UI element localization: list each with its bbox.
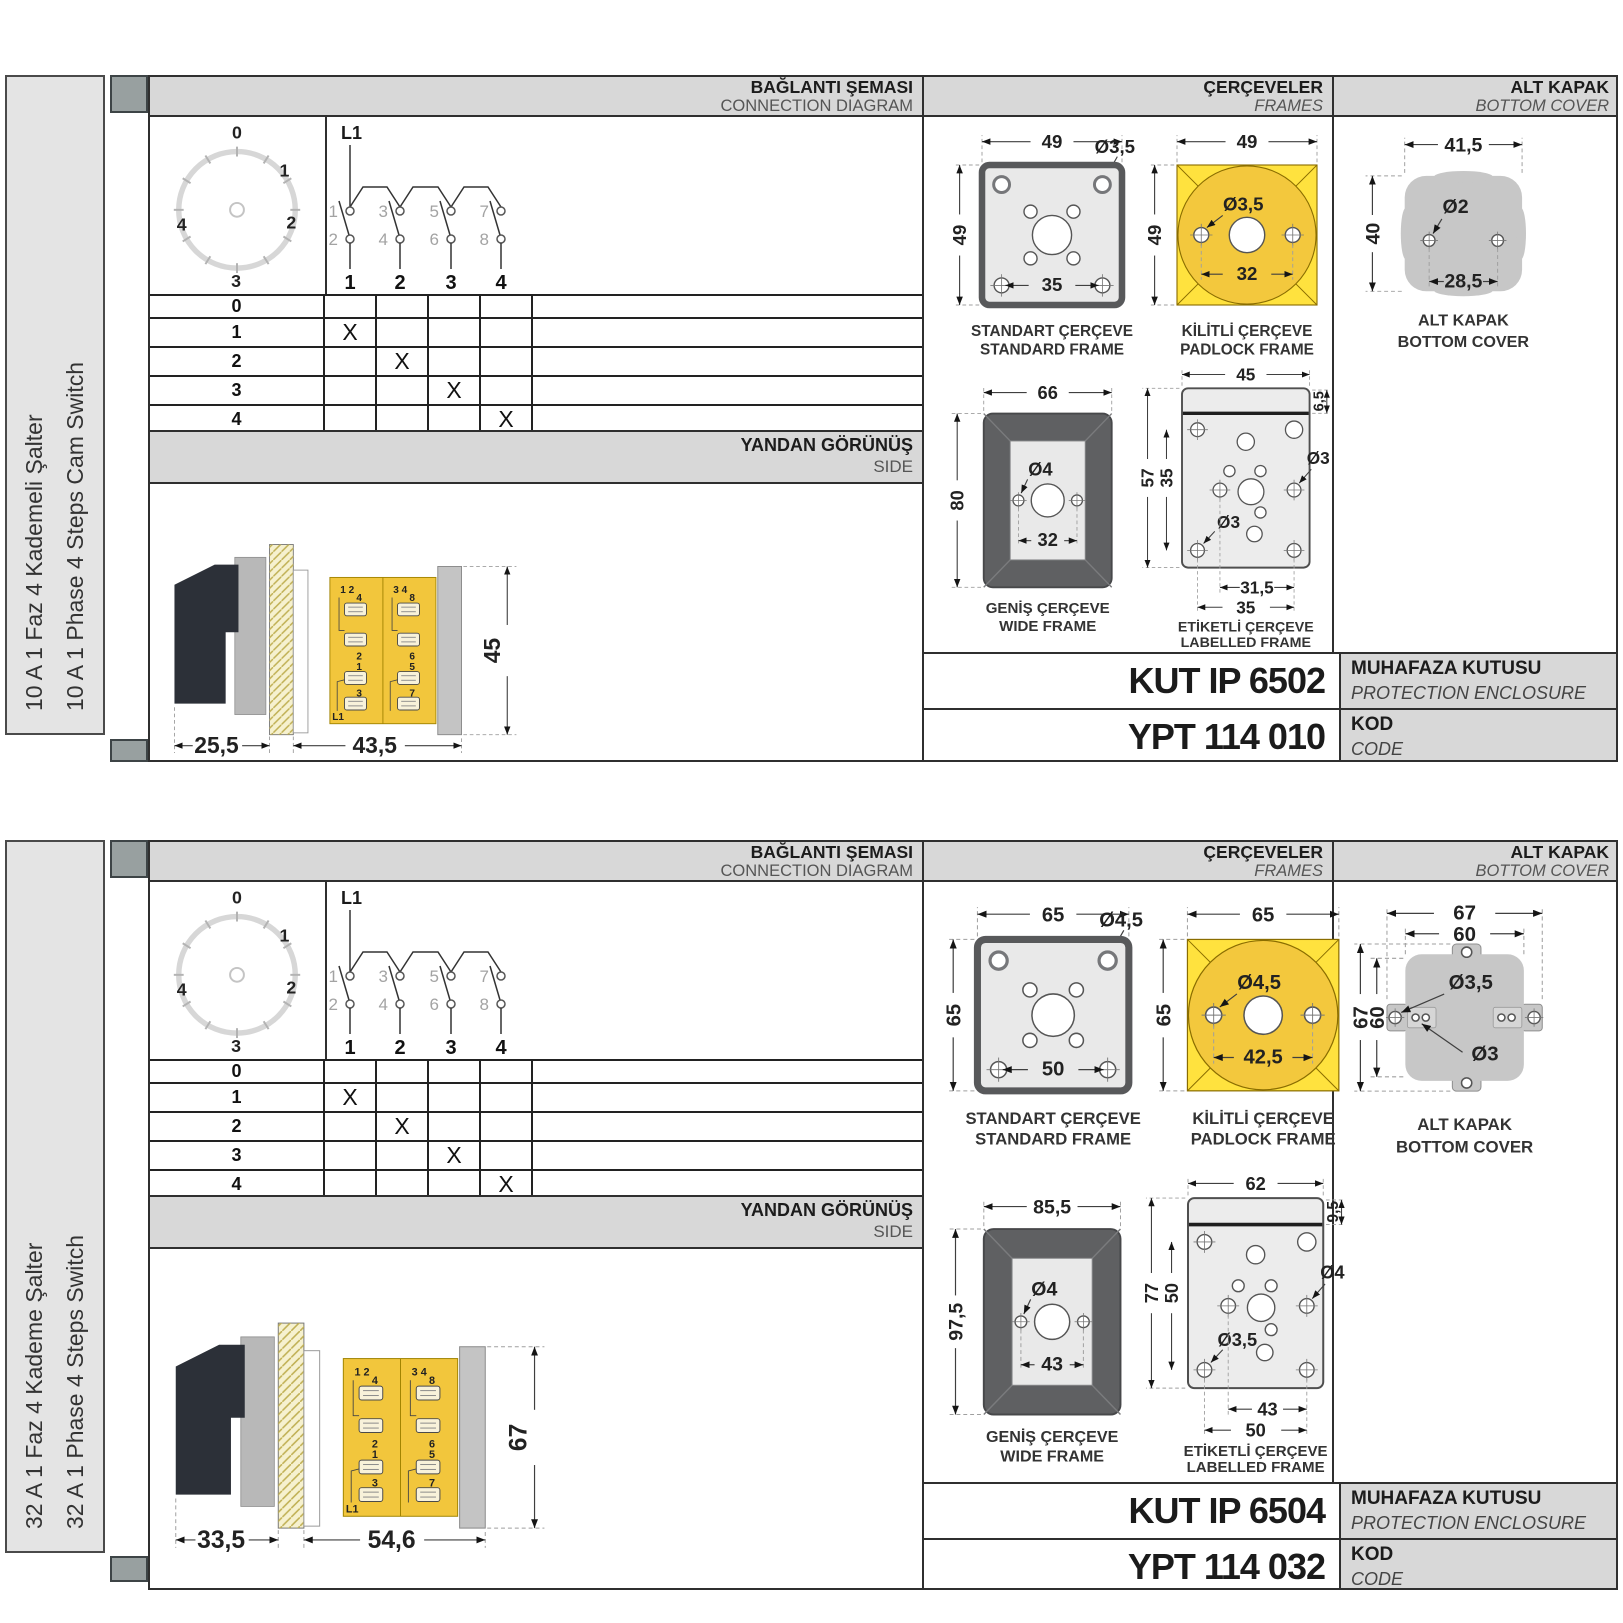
dim-label: Ø4: [1320, 1261, 1345, 1282]
terminal-label: 3: [356, 688, 362, 699]
circuit-input-label: L1: [341, 888, 362, 908]
contact-1: 1 2 1: [329, 201, 356, 292]
contact-2: 3 4 2: [379, 966, 406, 1057]
dim-label: 45: [1236, 365, 1256, 385]
mark-cell: [480, 295, 532, 318]
header-title-en: FRAMES: [922, 97, 1323, 116]
dim-label: Ø4: [1031, 1278, 1057, 1300]
mark-cell: [376, 318, 428, 347]
contact-3: 5 6 3: [430, 201, 457, 292]
wide-frame-figure: 85,5 97,5 Ø4 43 GENİŞ ÇERÇEVE WIDE FRAME: [935, 1190, 1140, 1471]
code-row: YPT 114 032 KOD CODE: [922, 1538, 1618, 1590]
pos-cell: 2: [150, 347, 324, 376]
dim-label: 65: [1042, 904, 1064, 926]
bottom-cover-header: ALT KAPAK BOTTOM COVER: [1332, 77, 1618, 117]
mark-cell: [480, 1060, 532, 1083]
enclosure-label: MUHAFAZA KUTUSU PROTECTION ENCLOSURE: [1339, 654, 1618, 708]
code-label: KOD CODE: [1339, 1540, 1618, 1590]
figure-caption-en: LABELLED FRAME: [1187, 1459, 1325, 1476]
figure-caption-tr: GENİŞ ÇERÇEVE: [986, 1428, 1119, 1446]
dim-height: 67: [487, 1347, 544, 1528]
dial-pos-0: 0: [232, 123, 242, 143]
terminal-label: 4: [372, 1375, 378, 1387]
dim-label: 28,5: [1444, 270, 1482, 292]
product-name-english: 10 A 1 Phase 4 Steps Cam Switch: [62, 77, 89, 733]
mark-cell: [480, 1141, 532, 1170]
dim-label: 80: [947, 490, 968, 510]
enclosure-row: KUT IP 6502 MUHAFAZA KUTUSU PROTECTION E…: [922, 652, 1618, 708]
mark-cell: [428, 1083, 480, 1112]
side-view-header: YANDAN GÖRÜNÜŞ SIDE: [150, 1195, 922, 1249]
side-view-header: YANDAN GÖRÜNÜŞ SIDE: [150, 430, 922, 484]
product-code: YPT 114 010: [922, 710, 1339, 762]
output-num: 3: [445, 1037, 456, 1057]
dim-label: 33,5: [197, 1527, 245, 1554]
side-title-tr: YANDAN GÖRÜNÜŞ: [150, 435, 913, 456]
dim-label: 35: [1157, 468, 1177, 488]
contact-num: 8: [480, 995, 489, 1014]
code-label: KOD CODE: [1339, 710, 1618, 762]
contact-3: 5 6 3: [430, 966, 457, 1057]
empty-cell: [532, 347, 922, 376]
corner-marker: [110, 840, 148, 878]
back-plate: [438, 566, 462, 734]
dim-label: 50: [1042, 1059, 1064, 1081]
mark-cell: [480, 347, 532, 376]
mounting-panel: [270, 545, 294, 735]
corner-marker: [110, 1556, 148, 1582]
mark-cell: X: [428, 376, 480, 405]
dim-label: Ø3: [1307, 448, 1330, 468]
figure-caption-tr: ALT KAPAK: [1417, 1115, 1512, 1134]
mark-cell: [324, 376, 376, 405]
enclosure-row: KUT IP 6504 MUHAFAZA KUTUSU PROTECTION E…: [922, 1482, 1618, 1538]
circuit-input-label: L1: [341, 123, 362, 143]
contact-4: 7 8 4: [480, 201, 508, 292]
dim-label: 49: [1237, 131, 1258, 152]
mark-cell: [428, 347, 480, 376]
empty-cell: [532, 1060, 922, 1083]
terminal-label: 1: [356, 662, 362, 673]
product-name-turkish: 10 A 1 Faz 4 Kademeli Şalter: [21, 77, 48, 733]
switch-handle: [176, 1345, 245, 1495]
label-en: PROTECTION ENCLOSURE: [1351, 681, 1618, 705]
figure-caption-en: WIDE FRAME: [1000, 1447, 1104, 1465]
side-title-en: SIDE: [150, 1221, 913, 1242]
terminal-label: 4: [356, 593, 362, 604]
rotary-dial-figure: 0 1 2 3 4: [158, 884, 316, 1054]
dim-label: 65: [1252, 904, 1274, 926]
dim-label: 25,5: [194, 732, 239, 758]
mark-cell: [376, 1141, 428, 1170]
standard-frame-figure: 65 Ø4,5 65 50 STANDART ÇERÇEVE STANDARD …: [932, 894, 1144, 1158]
dim-label: 65: [1153, 1004, 1175, 1026]
dim-label: 60: [1367, 1006, 1389, 1029]
empty-cell: [532, 376, 922, 405]
dim-label: 67: [506, 1424, 533, 1451]
empty-cell: [532, 295, 922, 318]
header-title-en: BOTTOM COVER: [1332, 862, 1609, 881]
label-tr: MUHAFAZA KUTUSU: [1351, 657, 1618, 681]
cover-shape: [1387, 944, 1542, 1091]
pos-cell: 0: [150, 1060, 324, 1083]
figure-caption-tr: GENİŞ ÇERÇEVE: [986, 600, 1110, 617]
terminal-pair-label: 3 4: [393, 585, 407, 596]
figure-caption-en: PADLOCK FRAME: [1191, 1129, 1336, 1148]
terminal-pair-label: 1 2: [355, 1366, 370, 1378]
dim-label: Ø3,5: [1223, 194, 1263, 215]
figure-caption-en: PADLOCK FRAME: [1180, 341, 1314, 358]
standard-frame-figure: 49 Ø3,5 49 35 STANDART ÇERÇEVE STANDARD …: [940, 123, 1136, 368]
dim-label: 67: [1453, 902, 1476, 924]
mark-cell: [480, 318, 532, 347]
empty-cell: [532, 1141, 922, 1170]
bottom-cover-figure: 41,5 40 Ø2 28,5 ALT KAPAK BOTTOM COVER: [1346, 125, 1571, 370]
connection-diagram-header: BAĞLANTI ŞEMASI CONNECTION DIAGRAM: [150, 842, 922, 882]
mark-cell: [428, 1060, 480, 1083]
dial-pos-4: 4: [177, 980, 187, 1000]
dim-label: 60: [1453, 924, 1476, 946]
figure-caption-en: BOTTOM COVER: [1398, 333, 1530, 351]
bottom-cover-figure: 67 60 67 60: [1342, 897, 1577, 1175]
terminal-pair-label: 3 4: [412, 1366, 427, 1378]
dim-label: Ø3,5: [1095, 136, 1135, 157]
mark-cell: [376, 1060, 428, 1083]
contact-num: 7: [480, 202, 489, 221]
switching-table: 0 1X 2X 3X 4X: [150, 1059, 922, 1200]
dim-body-depth: 54,6: [304, 1527, 485, 1554]
contact-num: 6: [430, 995, 439, 1014]
figure-caption-en: WIDE FRAME: [999, 618, 1096, 635]
header-title-tr: ÇERÇEVELER: [922, 78, 1323, 97]
dim-label: 35: [1236, 597, 1256, 617]
dim-label: 32: [1237, 263, 1258, 284]
header-title-tr: ÇERÇEVELER: [922, 843, 1323, 862]
pos-cell: 1: [150, 1083, 324, 1112]
dim-label: 50: [1245, 1420, 1265, 1441]
terminal-label: 5: [409, 662, 415, 673]
dim-label: Ø2: [1443, 196, 1469, 218]
dim-label: 45: [479, 638, 505, 664]
pos-cell: 2: [150, 1112, 324, 1141]
contact-2: 3 4 2: [379, 201, 406, 292]
pos-cell: 3: [150, 1141, 324, 1170]
dim-label: 49: [1042, 131, 1063, 152]
circuit-diagram: L1 1 2 1 3 4 2: [325, 884, 922, 1057]
contact-4: 7 8 4: [480, 966, 508, 1057]
dial-pos-3: 3: [231, 1036, 241, 1054]
contact-num: 2: [329, 230, 338, 249]
dim-label: Ø3,5: [1449, 972, 1493, 994]
back-plate: [460, 1347, 486, 1528]
terminal-label: 7: [429, 1478, 435, 1490]
side-view-figure: 1 2 3 4 4 8 2 6 1 5 3 7 L1 67: [158, 1260, 848, 1556]
label-en: PROTECTION ENCLOSURE: [1351, 1511, 1618, 1535]
figure-caption-tr: ETİKETLİ ÇERÇEVE: [1184, 1443, 1328, 1460]
contact-1: 1 2 1: [329, 966, 356, 1057]
bottom-cover-header: ALT KAPAK BOTTOM COVER: [1332, 842, 1618, 882]
input-label: L1: [332, 712, 344, 723]
mark-cell: [428, 318, 480, 347]
mounting-panel: [278, 1323, 304, 1528]
dim-label: 41,5: [1444, 134, 1482, 156]
dim-label: 49: [949, 225, 970, 246]
dim-label: 43,5: [352, 732, 397, 758]
dim-body-depth: 43,5: [293, 732, 461, 758]
front-plate: [241, 1337, 275, 1507]
product-side-label: 32 A 1 Faz 4 Kademe Şalter 32 A 1 Phase …: [5, 840, 105, 1553]
mark-cell: [480, 1083, 532, 1112]
cam-body: 1 2 3 4 4 8 2 6 1 5 3 7 L1: [330, 577, 436, 723]
terminal-label: 1: [372, 1449, 378, 1461]
mark-cell: [324, 347, 376, 376]
header-title-en: CONNECTION DIAGRAM: [150, 862, 913, 881]
dim-label: 65: [943, 1004, 965, 1026]
output-num: 4: [495, 272, 507, 292]
mark-cell: [428, 295, 480, 318]
figure-caption-en: BOTTOM COVER: [1396, 1137, 1533, 1156]
mark-cell: [428, 1112, 480, 1141]
side-view-figure: 1 2 3 4 4 8 2 6 1 5 3 7 L1 45: [158, 486, 798, 760]
contact-num: 8: [480, 230, 489, 249]
dim-label: 57: [1138, 468, 1158, 487]
input-label: L1: [346, 1503, 359, 1515]
circuit-diagram: L1 1 2 1 3 4 2: [325, 119, 922, 292]
enclosure-code: KUT IP 6504: [922, 1484, 1339, 1538]
terminal-label: 8: [429, 1375, 435, 1387]
mark-cell: [480, 376, 532, 405]
dial-pos-0: 0: [232, 888, 242, 908]
dim-label: 43: [1257, 1399, 1277, 1420]
contact-num: 2: [329, 995, 338, 1014]
pos-cell: 3: [150, 376, 324, 405]
terminal-label: 3: [372, 1478, 378, 1490]
enclosure-code: KUT IP 6502: [922, 654, 1339, 708]
product-name-turkish: 32 A 1 Faz 4 Kademe Şalter: [21, 842, 48, 1551]
product-block-10a: 10 A 1 Faz 4 Kademeli Şalter 10 A 1 Phas…: [0, 75, 1623, 762]
terminal-label: 7: [409, 688, 415, 699]
output-num: 1: [344, 272, 355, 292]
figure-caption-tr: ALT KAPAK: [1418, 312, 1509, 330]
mark-cell: X: [324, 318, 376, 347]
dim-front-depth: 33,5: [176, 1499, 279, 1554]
figure-caption-tr: STANDART ÇERÇEVE: [965, 1109, 1140, 1128]
figure-caption-en: STANDARD FRAME: [975, 1129, 1131, 1148]
contact-num: 4: [379, 230, 388, 249]
dim-label: 54,6: [368, 1527, 416, 1554]
label-en: CODE: [1351, 1567, 1618, 1590]
mark-cell: [324, 1141, 376, 1170]
mark-cell: [324, 295, 376, 318]
output-num: 2: [394, 272, 405, 292]
dim-label: Ø4: [1028, 459, 1053, 480]
terminal-label: 8: [409, 593, 415, 604]
dim-label: 43: [1041, 1354, 1063, 1376]
dim-label: 40: [1362, 223, 1384, 245]
output-num: 3: [445, 272, 456, 292]
labelled-frame-figure: 45 6,5 57 35 Ø3 Ø3: [1132, 359, 1332, 650]
dial-pos-4: 4: [177, 215, 187, 235]
dim-label: Ø3: [1217, 512, 1240, 532]
terminal-pair-label: 1 2: [340, 585, 354, 596]
spacer: [293, 570, 308, 733]
datasheet-panel: BAĞLANTI ŞEMASI CONNECTION DIAGRAM ÇERÇE…: [148, 75, 1618, 762]
contact-num: 5: [430, 202, 439, 221]
dim-label: 97,5: [945, 1303, 967, 1341]
pos-cell: 0: [150, 295, 324, 318]
dial-pos-2: 2: [286, 978, 296, 998]
dim-label: Ø3,5: [1218, 1329, 1258, 1350]
dim-label: 42,5: [1244, 1047, 1283, 1069]
cam-body: 1 2 3 4 4 8 2 6 1 5 3 7 L1: [343, 1359, 457, 1517]
contact-num: 5: [430, 967, 439, 986]
mark-cell: X: [376, 347, 428, 376]
product-name-english: 32 A 1 Phase 4 Steps Switch: [62, 842, 89, 1551]
divider: [1332, 77, 1334, 652]
figure-caption-tr: ETİKETLİ ÇERÇEVE: [1178, 618, 1314, 635]
dim-label: 50: [1161, 1283, 1182, 1303]
output-num: 1: [344, 1037, 355, 1057]
dim-label: 49: [1144, 225, 1165, 246]
dim-height: 45: [463, 566, 516, 734]
label-tr: MUHAFAZA KUTUSU: [1351, 1487, 1618, 1511]
spacer: [304, 1351, 320, 1526]
dim-label: 32: [1038, 529, 1058, 550]
frames-header: ÇERÇEVELER FRAMES: [922, 77, 1332, 117]
figure-caption-en: LABELLED FRAME: [1181, 635, 1311, 650]
contact-num: 6: [430, 230, 439, 249]
mark-cell: [376, 376, 428, 405]
terminal-label: 5: [429, 1449, 435, 1461]
header-title-en: FRAMES: [922, 862, 1323, 881]
contact-num: 7: [480, 967, 489, 986]
mark-cell: X: [376, 1112, 428, 1141]
dim-label: Ø4,5: [1099, 909, 1143, 931]
dim-label: 62: [1245, 1173, 1265, 1194]
product-side-label: 10 A 1 Faz 4 Kademeli Şalter 10 A 1 Phas…: [5, 75, 105, 735]
dim-label: Ø4,5: [1237, 972, 1281, 994]
dim-label: 35: [1042, 274, 1063, 295]
contact-num: 1: [329, 202, 338, 221]
front-plate: [235, 557, 266, 714]
frames-header: ÇERÇEVELER FRAMES: [922, 842, 1332, 882]
mark-cell: [480, 1112, 532, 1141]
connection-diagram-header: BAĞLANTI ŞEMASI CONNECTION DIAGRAM: [150, 77, 922, 117]
side-title-tr: YANDAN GÖRÜNÜŞ: [150, 1200, 913, 1221]
dim-label: 66: [1038, 382, 1058, 403]
corner-marker: [110, 739, 148, 762]
divider: [922, 842, 924, 1588]
dial-pos-1: 1: [279, 925, 289, 945]
switching-table: 0 1X 2X 3X 4X: [150, 294, 922, 435]
contact-num: 4: [379, 995, 388, 1014]
mark-cell: X: [324, 1083, 376, 1112]
header-title-en: BOTTOM COVER: [1332, 97, 1609, 116]
header-title-tr: BAĞLANTI ŞEMASI: [150, 843, 913, 862]
empty-cell: [532, 1083, 922, 1112]
label-en: CODE: [1351, 737, 1618, 761]
header-title-en: CONNECTION DIAGRAM: [150, 97, 913, 116]
dim-label: 9,5: [1325, 1201, 1342, 1223]
header-title-tr: BAĞLANTI ŞEMASI: [150, 78, 913, 97]
corner-marker: [110, 75, 148, 113]
mark-cell: X: [428, 1141, 480, 1170]
figure-caption-en: STANDARD FRAME: [980, 341, 1124, 358]
rotary-dial-figure: 0 1 2 3 4: [158, 119, 316, 289]
product-code: YPT 114 032: [922, 1540, 1339, 1590]
dim-label: 31,5: [1240, 577, 1274, 597]
output-num: 2: [394, 1037, 405, 1057]
dial-pos-2: 2: [286, 213, 296, 233]
mark-cell: [324, 1060, 376, 1083]
side-title-en: SIDE: [150, 456, 913, 477]
mark-cell: [376, 1083, 428, 1112]
empty-cell: [532, 318, 922, 347]
header-title-tr: ALT KAPAK: [1332, 78, 1609, 97]
label-tr: KOD: [1351, 1543, 1618, 1567]
pos-cell: 1: [150, 318, 324, 347]
figure-caption-tr: STANDART ÇERÇEVE: [971, 323, 1133, 340]
output-num: 4: [495, 1037, 507, 1057]
contact-num: 1: [329, 967, 338, 986]
wide-frame-figure: 66 80 Ø4 32 GENİŞ ÇERÇEVE WIDE FRAME: [938, 377, 1130, 640]
padlock-frame-figure: 65 65 Ø4,5 42,5 KİLİTLİ ÇERÇEVE PADLOCK …: [1142, 894, 1354, 1158]
empty-cell: [532, 1112, 922, 1141]
mark-cell: [324, 1112, 376, 1141]
contact-num: 3: [379, 202, 388, 221]
padlock-frame-figure: 49 49 Ø3,5 32 KİLİTLİ ÇERÇEVE PADLOCK FR…: [1135, 123, 1331, 368]
dim-label: 77: [1141, 1283, 1162, 1303]
dim-label: 6,5: [1311, 391, 1327, 411]
dim-label: 85,5: [1033, 1196, 1071, 1218]
product-block-32a: 32 A 1 Faz 4 Kademe Şalter 32 A 1 Phase …: [0, 840, 1623, 1590]
label-tr: KOD: [1351, 713, 1618, 737]
header-title-tr: ALT KAPAK: [1332, 843, 1609, 862]
dim-label: Ø3: [1471, 1043, 1498, 1065]
figure-caption-tr: KİLİTLİ ÇERÇEVE: [1182, 323, 1313, 340]
contact-num: 3: [379, 967, 388, 986]
dial-pos-1: 1: [279, 160, 289, 180]
datasheet-panel: BAĞLANTI ŞEMASI CONNECTION DIAGRAM ÇERÇE…: [148, 840, 1618, 1590]
switch-handle: [174, 565, 238, 704]
mark-cell: [376, 295, 428, 318]
dial-pos-3: 3: [231, 271, 241, 289]
figure-caption-tr: KİLİTLİ ÇERÇEVE: [1192, 1109, 1333, 1128]
enclosure-label: MUHAFAZA KUTUSU PROTECTION ENCLOSURE: [1339, 1484, 1618, 1538]
code-row: YPT 114 010 KOD CODE: [922, 708, 1618, 762]
labelled-frame-figure: 62 9,5 77 50 Ø4 Ø3,5: [1135, 1167, 1347, 1476]
